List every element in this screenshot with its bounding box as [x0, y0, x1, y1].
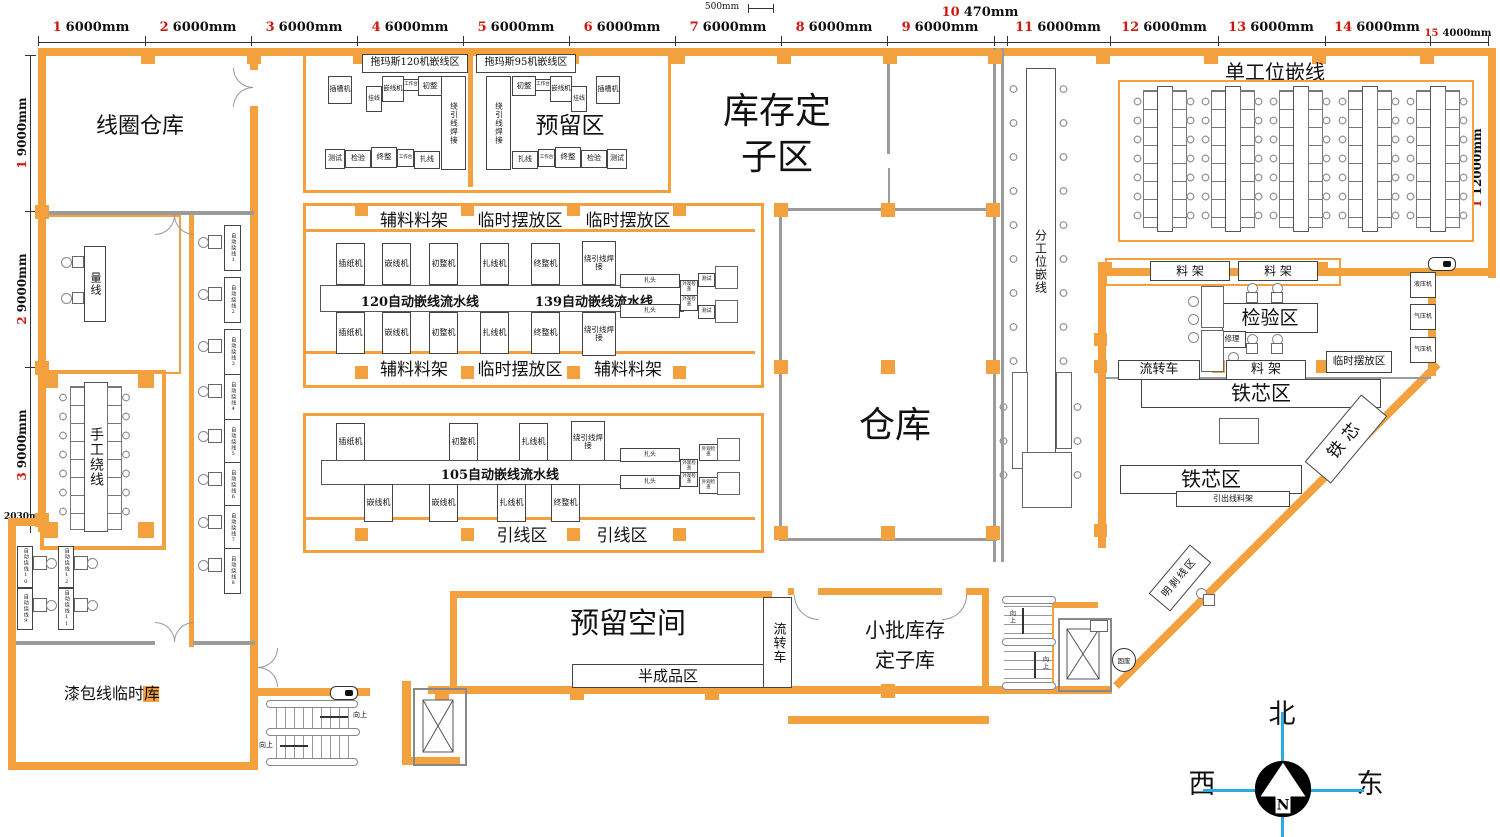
zhatou-2a: 扎头: [620, 448, 680, 462]
stair-rail: [266, 700, 358, 708]
wall-single-right: [1488, 48, 1496, 278]
tick: [781, 36, 782, 46]
wall-reserved-left: [450, 593, 457, 693]
column: [671, 50, 685, 64]
column: [774, 360, 788, 374]
m105-bot-4: 终整机: [551, 484, 580, 522]
grid-7: 76000mm: [683, 20, 773, 35]
zhatou-2b: 扎头: [620, 475, 680, 489]
gwall-470-a: [993, 48, 996, 562]
workstation-icon: [1246, 343, 1258, 354]
t2-slot-machine: 插槽机: [596, 76, 620, 104]
chairs-column: [998, 390, 1009, 480]
machine-icon: [74, 598, 88, 612]
t2-initial-shaping: 初整: [512, 76, 536, 96]
bench-belt: [1362, 86, 1378, 232]
m120-bot-1: 插纸机: [336, 312, 365, 354]
grid-13: 136000mm: [1226, 20, 1316, 35]
wall-enamel-right: [250, 645, 258, 770]
stair-arrow: [1034, 652, 1036, 678]
compass-line-e: [1310, 789, 1364, 792]
tick: [251, 36, 252, 46]
station-column: [1445, 90, 1460, 228]
tick: [994, 36, 995, 46]
machine-icon: [208, 384, 222, 398]
strip2-rack1: 辅料料架: [368, 355, 460, 380]
chairs-column: [1338, 92, 1347, 222]
station-column: [1348, 90, 1363, 228]
tick: [25, 55, 36, 56]
area-coil-warehouse: 线圈仓库: [80, 108, 200, 140]
wall-smallbatch-top-a: [788, 588, 794, 595]
door-arc: [794, 595, 819, 620]
chair-icon: [61, 257, 72, 268]
m105-bot-1: 嵌线机: [364, 484, 393, 522]
station-column: [1143, 90, 1158, 228]
autowind-11: 自动绕线11: [58, 588, 74, 630]
door-arc: [233, 68, 253, 88]
m120-bot-3: 初整机: [429, 312, 458, 354]
stair-rail: [1002, 682, 1056, 690]
column: [1094, 360, 1107, 373]
machine-icon: [208, 287, 222, 301]
gwall-warehouse-left: [779, 208, 782, 541]
rack-box-2: 料 架: [1238, 261, 1318, 281]
elevator-right: [1058, 618, 1112, 692]
multi-station-belt: 分工位嵌线: [1026, 68, 1056, 455]
wall-left-lower: [8, 518, 16, 770]
gwall-partition-a: [887, 62, 890, 154]
grid-12: 126000mm: [1119, 20, 1209, 35]
area-small-batch-2: 定子库: [855, 644, 955, 673]
grid-6: 66000mm: [577, 20, 667, 35]
tick: [357, 36, 358, 46]
machine-icon: [33, 556, 47, 570]
autowind-5: 自动绕线5: [224, 419, 241, 465]
thomas95-title: 拖玛斯95机嵌线区: [476, 54, 576, 73]
chairs-column: [1072, 390, 1083, 480]
m105-bot-2: 嵌线机: [429, 484, 458, 522]
station-column: [1416, 90, 1431, 228]
autowind-1: 自动绕线1: [224, 225, 241, 271]
tick: [887, 36, 888, 46]
t2-final-shaping: 终整: [555, 147, 581, 168]
area-stock-stator-line1: 库存定: [692, 82, 862, 134]
elevator-left: [413, 688, 467, 766]
tick: [773, 4, 774, 13]
inspect-2c: 外观检查: [699, 444, 718, 461]
floor-plan: 16000mm 26000mm 36000mm 46000mm 56000mm …: [0, 0, 1500, 837]
column: [881, 526, 895, 540]
column: [1094, 333, 1107, 346]
grid-11: 116000mm: [1013, 20, 1103, 35]
column: [570, 686, 584, 700]
chair-icon: [1188, 332, 1199, 343]
workstation-icon: [1246, 292, 1258, 303]
column: [138, 372, 154, 388]
t1-slot-machine: 插槽机: [328, 76, 352, 104]
station-column: [1308, 90, 1323, 228]
chairs-column: [58, 388, 68, 526]
grid-5: 56000mm: [471, 20, 561, 35]
column: [42, 372, 58, 388]
autowind-9: 自动绕线9: [17, 588, 33, 630]
station-column: [1172, 90, 1187, 228]
area-stock-stator-line2: 子区: [712, 128, 842, 180]
thomas120-title: 拖玛斯120机嵌线区: [362, 54, 468, 73]
autowind-12: 自动绕线12: [58, 546, 74, 588]
station-column: [1211, 90, 1226, 228]
zhatou-1b: 扎头: [620, 304, 680, 318]
column: [988, 50, 1002, 64]
m120-bot-4: 扎线机: [480, 312, 509, 354]
m105-top-1: 插纸机: [336, 423, 365, 461]
solid-waste: 固废: [1112, 648, 1136, 672]
column: [138, 522, 154, 538]
svg-text:N: N: [1277, 798, 1290, 814]
dim-500mm: 500mm: [700, 2, 744, 12]
tick: [38, 36, 39, 46]
elevator-notch: [1090, 620, 1108, 632]
wall-reserved-top: [450, 591, 772, 598]
bench-belt: [1157, 86, 1173, 232]
tick: [463, 36, 464, 46]
tick: [1325, 36, 1326, 46]
chairs-column: [1133, 92, 1142, 222]
wall-bottom-left: [8, 762, 258, 770]
chairs-column: [1008, 72, 1019, 372]
inspect-1b: 外观检查: [680, 295, 698, 311]
t2-weld: 绕引线焊接: [486, 76, 511, 170]
chairs-column: [1269, 92, 1278, 222]
core-box: [1219, 418, 1259, 444]
tick: [748, 4, 749, 13]
m105-top-2: 初整机: [449, 423, 478, 461]
compass-west-label: 西: [1184, 762, 1220, 801]
m120-top-1: 插纸机: [336, 243, 365, 285]
area-reserved: 预留区: [528, 106, 612, 140]
chairs-column: [121, 388, 131, 526]
grid-2: 26000mm: [153, 20, 243, 35]
grid-4: 46000mm: [365, 20, 455, 35]
column: [881, 203, 895, 217]
chairs-column: [1058, 72, 1069, 372]
grid-10: 10470mm: [930, 5, 1030, 20]
strip1-rack: 辅料料架: [368, 206, 460, 231]
tick: [145, 36, 146, 46]
stairs-up-label-2: 向上: [1040, 650, 1050, 676]
area-inspection: 检验区: [1222, 303, 1318, 333]
grid-1: 16000mm: [46, 20, 136, 35]
m120-top-4: 扎线机: [480, 243, 509, 285]
t1-workbench2: 工作台: [397, 149, 414, 167]
tick: [1110, 36, 1111, 46]
m120-bot-5: 终整机: [531, 312, 560, 354]
end-box: [717, 438, 740, 461]
test-1b: 测试: [698, 305, 715, 319]
chair-icon: [46, 600, 57, 611]
belt105-label: 105自动嵌线流水线: [400, 464, 600, 483]
wall-diagonal: [1113, 361, 1440, 688]
stair-rail: [266, 728, 360, 736]
chair-icon: [61, 293, 72, 304]
inspection-table: [1201, 330, 1224, 372]
column: [42, 522, 58, 538]
chairs-column: [1186, 92, 1195, 222]
machine-icon: [208, 558, 222, 572]
area-reserved-space: 预留空间: [548, 600, 708, 642]
t2-workbench2: 工作台: [538, 149, 555, 167]
strip2-temp: 临时摆放区: [470, 355, 570, 380]
workstation-icon: [72, 256, 84, 268]
chair-icon: [87, 558, 98, 569]
column: [141, 50, 155, 64]
chairs-column: [1391, 92, 1400, 222]
elevator-x-icon: [422, 699, 454, 753]
tick: [675, 36, 676, 46]
stairs-up-label-1: 向上: [1007, 604, 1017, 630]
door-arc: [155, 622, 175, 642]
m120-top-5: 终整机: [531, 243, 560, 285]
inspect-2b: 外观检查: [680, 472, 698, 487]
machine-icon: [33, 598, 47, 612]
door-arc: [233, 87, 253, 107]
grid-9: 96000mm: [895, 20, 985, 35]
chairs-column: [1322, 92, 1331, 222]
wall-stairs-bracket-h: [1048, 602, 1098, 608]
inspection-table: [1201, 286, 1224, 328]
t1-hang-wire: 挂线: [366, 86, 382, 112]
stairs-up-label-4: 向上: [254, 740, 278, 750]
autowind-4: 自动绕线4: [224, 374, 241, 420]
m105-top-3: 扎线机: [519, 423, 548, 461]
machine-icon: [208, 429, 222, 443]
belt120-label: 120自动嵌线流水线: [330, 291, 510, 310]
bench-belt: [1430, 86, 1446, 232]
workstation-icon: [1271, 292, 1283, 303]
rack-box-3: 料 架: [1226, 360, 1306, 380]
column: [777, 50, 791, 64]
dim-500mm-line: [748, 8, 774, 9]
autowind-10: 自动绕线10: [17, 546, 33, 588]
station-column: [107, 386, 122, 530]
t2-workbench: 工作台: [535, 79, 551, 91]
column: [1094, 524, 1107, 537]
end-box: [717, 472, 740, 495]
manual-winding-bench: 手工绕线: [84, 382, 108, 532]
thomas-divider: [468, 52, 473, 187]
measuring-bench: 量线: [84, 246, 106, 322]
autowind-8: 自动绕线8: [224, 548, 241, 594]
station-column: [1240, 90, 1255, 228]
top-dim-line: [38, 42, 1488, 43]
stairs-up-label-3: 向上: [348, 710, 372, 720]
door-arc: [258, 667, 278, 687]
chairs-column: [1201, 92, 1210, 222]
machine-icon: [208, 235, 222, 249]
end-box: [715, 266, 738, 289]
gwall-470-b: [1001, 48, 1004, 562]
left-dim-line: [30, 55, 31, 533]
autowind-2: 自动绕线2: [224, 277, 241, 323]
stair-arrow: [320, 716, 348, 718]
chair-icon: [87, 600, 98, 611]
pneumatic-press-2: 气压机: [1410, 337, 1436, 363]
column: [881, 684, 895, 698]
t1-insert-machine: 嵌线机: [382, 76, 404, 102]
column: [881, 360, 895, 374]
station-box: [1056, 372, 1072, 449]
column: [774, 203, 788, 217]
station-column: [70, 386, 85, 530]
door-arc: [258, 648, 278, 668]
rack-box-1: 料 架: [1150, 261, 1230, 281]
tick: [1007, 36, 1008, 46]
zhatou-1a: 扎头: [620, 274, 680, 288]
t1-tie-wire: 扎线: [414, 151, 440, 169]
m120-top-3: 初整机: [429, 243, 458, 285]
inspect-2d: 外观检查: [699, 477, 718, 494]
strip1-temp1: 临时摆放区: [470, 206, 570, 231]
t1-final-shaping: 终整: [371, 147, 397, 168]
temp-area-box: 临时摆放区: [1326, 351, 1392, 373]
station-column: [1377, 90, 1392, 228]
workstation-icon: [1203, 594, 1215, 606]
column: [1420, 50, 1434, 64]
column: [247, 50, 261, 64]
machine-icon: [74, 556, 88, 570]
stair-arrow: [280, 745, 308, 747]
semi-finished-box: 半成品区: [572, 664, 764, 688]
left-dim-3: 39000mm: [15, 400, 29, 490]
tick: [569, 36, 570, 46]
autowind-6: 自动绕线6: [224, 462, 241, 508]
car-icon-left: [330, 686, 358, 700]
core-area-upper: 铁芯区: [1141, 379, 1381, 408]
grid-3: 36000mm: [259, 20, 349, 35]
transfer-cart-box: 流转车: [1118, 360, 1200, 380]
wall-smallbatch-top-b: [818, 588, 942, 595]
bench-belt: [1293, 86, 1309, 232]
column: [774, 526, 788, 540]
t2-test: 测试: [607, 149, 627, 169]
wall-corridor-right-b: [250, 106, 258, 647]
chairs-column: [1406, 92, 1415, 222]
autowind-7: 自动绕线7: [224, 505, 241, 551]
chairs-column: [1254, 92, 1263, 222]
grid-14: 146000mm: [1332, 20, 1422, 35]
column: [705, 686, 719, 700]
stair-arrow: [1022, 608, 1024, 634]
column: [1096, 50, 1110, 64]
t1-weld: 绕引线焊接: [441, 76, 466, 170]
area-enamel-temp: 漆包线临时库: [42, 680, 182, 704]
wall-right-region-left: [1098, 268, 1106, 548]
car-icon-right: [1428, 257, 1456, 271]
wall-smallbatch-bottom: [788, 716, 989, 724]
column: [986, 203, 1000, 217]
strip3-lead2: 引线区: [582, 521, 662, 546]
lead-rack-box: 引出线料架: [1176, 491, 1290, 507]
t1-initial-shaping: 初整: [418, 76, 442, 96]
autowind-3: 自动绕线3: [224, 329, 241, 375]
door-arc: [174, 622, 194, 642]
stair-rail: [1002, 638, 1056, 646]
strip2-rack2: 辅料料架: [578, 355, 678, 380]
gwall-partition-b: [888, 168, 890, 208]
chairs-column: [1459, 92, 1468, 222]
m120-bot-6: 绕引线焊接: [582, 312, 616, 356]
t1-workbench: 工作台: [403, 79, 419, 91]
elevator-x-icon: [1066, 628, 1100, 680]
column: [986, 360, 1000, 374]
workstation-icon: [1271, 343, 1283, 354]
end-machine: [1022, 452, 1072, 508]
gwall-enamel-top-a: [16, 641, 155, 645]
wall-elevator-left-v: [402, 681, 411, 765]
pneumatic-press-1: 气压机: [1410, 304, 1436, 330]
inspect-1a: 外观检查: [680, 280, 698, 296]
t2-tie-wire: 扎线: [512, 151, 538, 169]
wall-smallbatch-right: [982, 588, 989, 688]
area-warehouse: 仓库: [845, 396, 945, 448]
end-box: [715, 300, 738, 323]
compass-line-w: [1203, 789, 1257, 792]
t1-check: 检验: [345, 150, 371, 168]
machine-icon: [208, 339, 222, 353]
bench-belt: [1225, 86, 1241, 232]
hydraulic-press: 液压机: [1410, 272, 1436, 298]
column: [883, 50, 897, 64]
machine-icon: [208, 472, 222, 486]
machine-icon: [208, 515, 222, 529]
left-dim-2: 29000mm: [15, 244, 29, 334]
compass-rose-icon: N: [1253, 759, 1313, 819]
core-area-lower: 铁芯区: [1120, 465, 1302, 494]
gwall-enamel-top-b: [193, 641, 255, 645]
m120-top-2: 嵌线机: [382, 243, 411, 285]
t2-insert-machine: 嵌线机: [550, 76, 572, 102]
chair-icon: [1188, 296, 1199, 307]
strip3-lead1: 引线区: [482, 521, 562, 546]
strip1-temp2: 临时摆放区: [578, 206, 678, 231]
stair-rail: [1002, 596, 1056, 604]
left-dim-1: 19000mm: [15, 88, 29, 178]
t2-check: 检验: [581, 150, 607, 168]
t1-test: 测试: [325, 149, 345, 169]
m105-top-4: 绕引线焊接: [571, 421, 605, 463]
m120-bot-2: 嵌线机: [382, 312, 411, 354]
workstation-icon: [72, 292, 84, 304]
wall-inner-190: [189, 213, 194, 647]
grid-8: 86000mm: [789, 20, 879, 35]
test-1a: 测试: [698, 273, 715, 287]
m120-top-6: 绕引线焊接: [582, 241, 616, 285]
tick: [1218, 36, 1219, 46]
chair-icon: [1188, 314, 1199, 325]
grid-15: 154000mm: [1420, 28, 1496, 39]
column: [986, 526, 1000, 540]
m105-bot-3: 扎线机: [497, 484, 526, 522]
stair-rail: [266, 758, 358, 766]
transfer-cart-strip: 流转车: [763, 597, 792, 688]
compass-east-label: 东: [1352, 762, 1388, 801]
station-column: [1279, 90, 1294, 228]
chair-icon: [46, 558, 57, 569]
